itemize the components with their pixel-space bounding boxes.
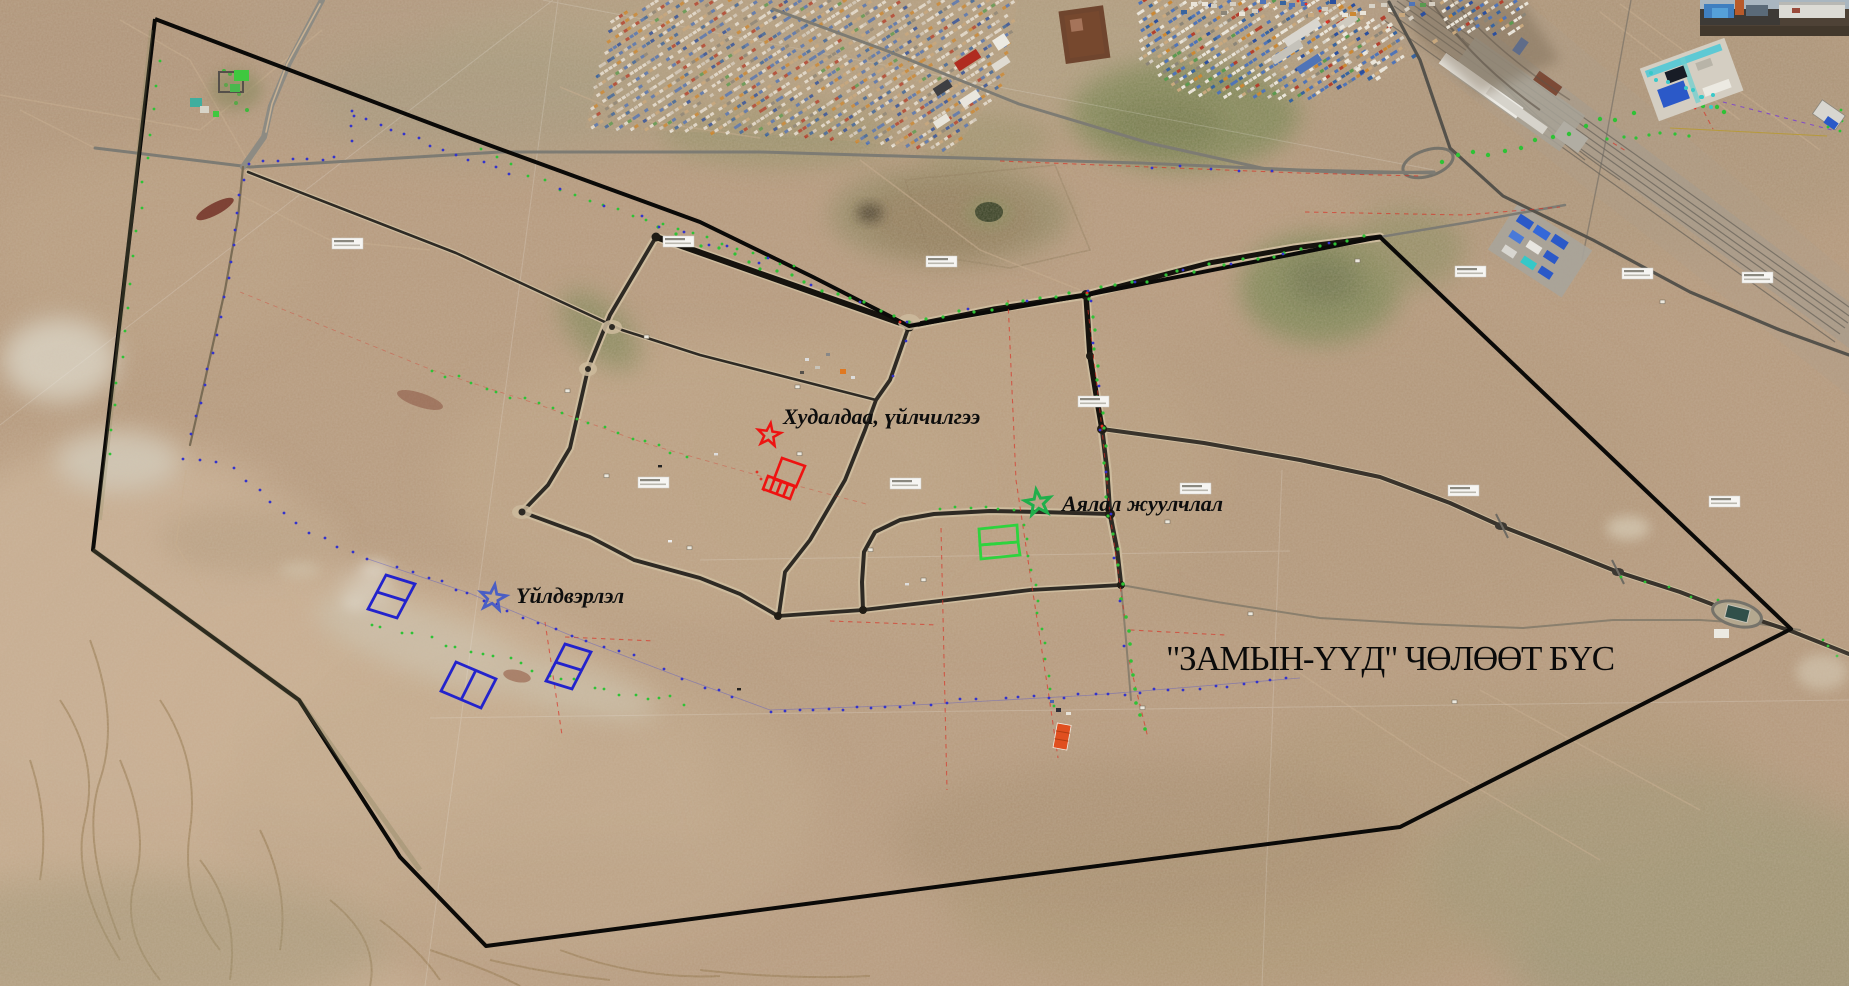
svg-text:Аялал жуулчлал: Аялал жуулчлал bbox=[1060, 491, 1223, 516]
svg-text:Худалдаа, үйлчилгээ: Худалдаа, үйлчилгээ bbox=[782, 404, 980, 429]
svg-text:Үйлдвэрлэл: Үйлдвэрлэл bbox=[516, 583, 624, 608]
svg-text:"ЗАМЫН-ҮҮД" ЧӨЛӨӨТ БҮС: "ЗАМЫН-ҮҮД" ЧӨЛӨӨТ БҮС bbox=[1166, 639, 1614, 678]
